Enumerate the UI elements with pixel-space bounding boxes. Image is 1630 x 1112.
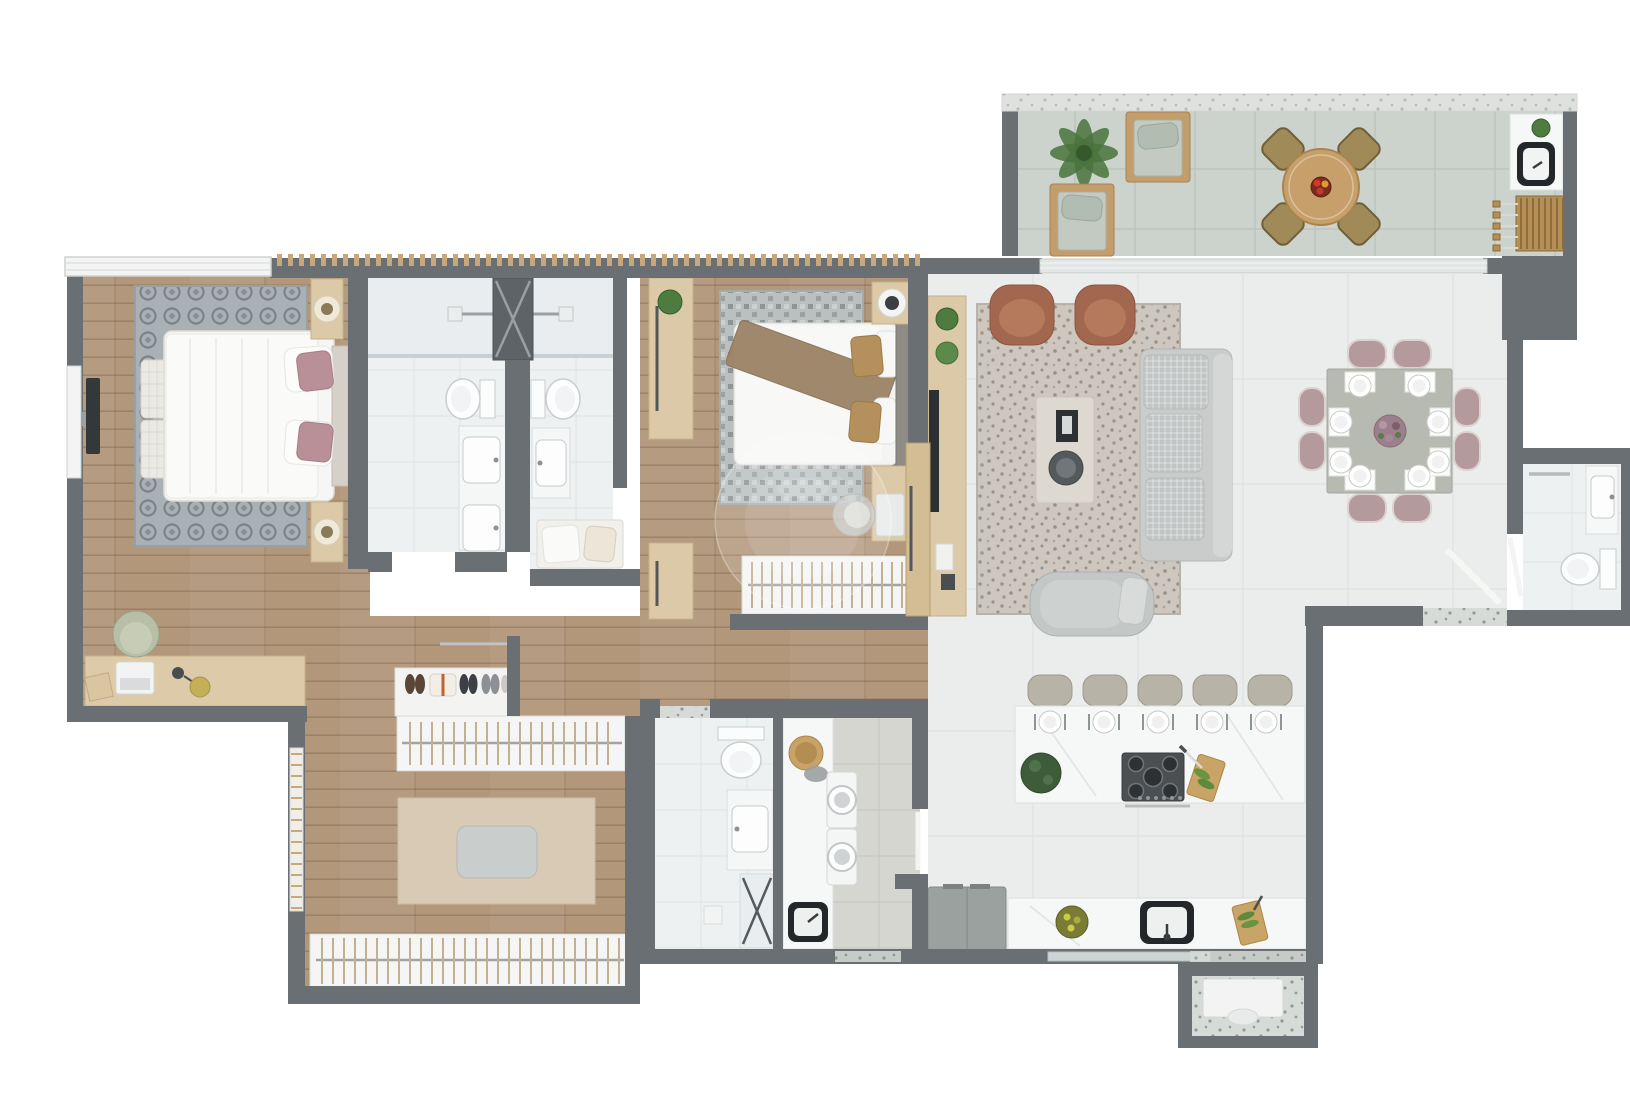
lamp-bed2-center	[885, 296, 899, 310]
island-plant	[1021, 753, 1061, 793]
pergola-slat	[838, 254, 843, 266]
cooktop-knob	[1154, 796, 1158, 800]
pergola-slat	[706, 254, 711, 266]
pergola-slat	[420, 254, 425, 266]
bbq-sink-basin	[1523, 148, 1549, 180]
wall-kitchen-right	[1306, 626, 1323, 964]
pergola-slat	[728, 254, 733, 266]
bath2-toilet-tank	[531, 380, 545, 418]
cooktop-knob	[1162, 796, 1166, 800]
kitchen-stool	[1248, 675, 1292, 706]
grill-skewer-handle	[1493, 212, 1500, 218]
dining-chair-bottom	[1348, 494, 1386, 522]
pergola-slat	[794, 254, 799, 266]
wall-powder-bottom	[1507, 610, 1630, 626]
powder-toilet-tank	[1600, 549, 1616, 589]
plate-top-inner	[1413, 380, 1426, 393]
window-bedroom1-left	[67, 366, 81, 478]
pergola-slat	[354, 254, 359, 266]
sofa-backrest	[1213, 354, 1232, 557]
island-plate-inner	[1044, 716, 1057, 729]
pergola-slat	[321, 254, 326, 266]
pergola-slat	[684, 254, 689, 266]
wall-terrace-top-speckle	[1002, 94, 1577, 111]
wall-bedroom2-bottom	[730, 614, 928, 630]
coffee-table-bowl-inner	[1056, 458, 1076, 478]
watermark-dome	[777, 478, 829, 498]
grill-skewer-handle	[1493, 223, 1500, 229]
service-door-threshold	[1190, 951, 1306, 962]
pergola-slat	[519, 254, 524, 266]
office-notebook	[85, 673, 113, 701]
cooktop-burner-bottom	[1129, 784, 1144, 799]
pergola-slat	[772, 254, 777, 266]
wall-bath1-bottom-a	[368, 552, 392, 572]
wall-bath1-bottom-b	[455, 552, 507, 572]
pergola-slat	[563, 254, 568, 266]
ac-unit-fan	[1228, 1009, 1258, 1025]
cooktop-burner-top	[1129, 757, 1144, 772]
sofa-cushion-mid	[1146, 414, 1202, 472]
island-plate-inner	[1152, 716, 1165, 729]
shoe-pair-2a	[460, 674, 469, 694]
dining-chair-top	[1348, 340, 1386, 368]
pergola-slat	[816, 254, 821, 266]
pergola-slat	[497, 254, 502, 266]
island-plant-leaf-a	[1029, 760, 1041, 772]
dining-chair-right	[1454, 388, 1480, 426]
tv-bedroom1	[86, 378, 100, 454]
laundry-basket-inner	[795, 742, 817, 764]
wall-closet-stub	[507, 636, 520, 716]
island-plate-inner	[1260, 716, 1273, 729]
fruit-c	[1317, 188, 1324, 195]
pergola-slat	[508, 254, 513, 266]
lamp-bed1-bottom-shade	[321, 526, 333, 538]
wall-closet-bottom	[288, 986, 640, 1004]
pergola-slat	[585, 254, 590, 266]
pergola-slat	[376, 254, 381, 266]
pergola-slat	[882, 254, 887, 266]
powder-toilet-seat	[1567, 559, 1589, 579]
wall-left	[67, 268, 83, 722]
bath2-shower-head	[559, 307, 573, 321]
pergola-slat	[904, 254, 909, 266]
fern-center	[1076, 145, 1092, 161]
pergola-slat	[299, 254, 304, 266]
kitchen-faucet-base	[1164, 934, 1171, 941]
pergola-slat	[541, 254, 546, 266]
shoe-pair-3b	[491, 674, 500, 694]
pergola-slat	[365, 254, 370, 266]
plate-bottom-inner	[1413, 470, 1426, 483]
bath3-toilet-tank	[718, 727, 764, 740]
pergola-slat	[332, 254, 337, 266]
shoe-pair-1a	[405, 674, 415, 694]
pergola-slat	[552, 254, 557, 266]
lamp-bed1-top-shade	[321, 303, 333, 315]
wall-closet-right	[625, 716, 640, 1004]
pergola-slat	[453, 254, 458, 266]
window-bedroom1-left-handle	[81, 412, 86, 426]
terrace-glass-door	[1040, 259, 1487, 273]
wall-bath-divider	[505, 360, 530, 552]
sofa-cushion-low	[1146, 478, 1204, 540]
bath1-toilet-tank	[480, 380, 495, 418]
counter-veg-b	[1074, 917, 1081, 924]
floor-plan-svg	[40, 16, 1630, 1096]
wall-powder-right	[1621, 448, 1630, 626]
pergola-slat	[574, 254, 579, 266]
wall-terrace-left	[1002, 109, 1018, 256]
dining-chair-left	[1299, 432, 1325, 470]
powder-faucet	[1610, 495, 1615, 500]
plate-top-inner	[1354, 380, 1367, 393]
pergola-slat	[288, 254, 293, 266]
pergola-slat	[343, 254, 348, 266]
bath2-bench-pillow-b	[583, 526, 616, 563]
pergola-slat	[629, 254, 634, 266]
pergola-slat	[805, 254, 810, 266]
island-plate-inner	[1098, 716, 1111, 729]
kitchen-stool	[1028, 675, 1072, 706]
dining-flower-c	[1385, 434, 1393, 442]
shoe-pair-2b	[469, 674, 478, 694]
wall-service-top-a	[640, 699, 660, 718]
entry-threshold	[1423, 608, 1507, 626]
bath2-shower-glass	[530, 354, 613, 358]
coffee-table-magazine-figure	[1062, 416, 1072, 434]
dining-flower-b	[1392, 422, 1400, 430]
pergola-slat	[893, 254, 898, 266]
plant-bedroom2-wardrobe	[658, 290, 682, 314]
cooktop-burner-center	[1144, 768, 1163, 787]
terrace-lounge-a-pillow	[1137, 122, 1179, 150]
pergola-slat	[464, 254, 469, 266]
office-lamp	[172, 667, 184, 679]
window-bedroom1-top	[65, 257, 271, 276]
pergola-slat	[849, 254, 854, 266]
shoe-pair-1b	[415, 674, 425, 694]
pergola-slat	[398, 254, 403, 266]
plate-right-inner	[1432, 416, 1445, 429]
bath3-threshold	[658, 706, 710, 718]
pergola-slat	[277, 254, 282, 266]
pergola-slat	[717, 254, 722, 266]
wall-entry-bottom	[1305, 606, 1423, 626]
pergola-slat	[662, 254, 667, 266]
pergola-slat	[486, 254, 491, 266]
office-laptop-keys	[120, 678, 150, 690]
pergola-slat	[783, 254, 788, 266]
washer-door-glass	[834, 792, 850, 808]
bed2-pillow-tan-a	[850, 335, 883, 377]
plant-console-a	[936, 308, 958, 330]
bath2-faucet	[538, 461, 543, 466]
bath1-faucet-b	[494, 526, 499, 531]
wall-bath2-bottom	[530, 569, 640, 586]
wall-bedroom1-bath	[348, 268, 368, 569]
pergola-slat	[310, 254, 315, 266]
armchair-right-cushion	[1084, 299, 1126, 337]
grill-skewer-handle	[1493, 234, 1500, 240]
fridge-handle-a	[943, 884, 963, 889]
wall-powder-left-stub	[1507, 448, 1523, 534]
office-hat	[190, 677, 210, 697]
counter-veg-bowl	[1056, 906, 1088, 938]
island-plant-leaf-b	[1043, 775, 1053, 785]
pergola-slat	[431, 254, 436, 266]
wall-bath2-right	[613, 278, 627, 488]
kitchen-stool	[1083, 675, 1127, 706]
laundry-cloth	[804, 766, 828, 782]
bath1-faucet-a	[494, 458, 499, 463]
pergola-slat	[739, 254, 744, 266]
pergola-slat	[860, 254, 865, 266]
grill-skewer-handle	[1493, 201, 1500, 207]
armchair-left-cushion	[999, 299, 1045, 337]
bath3-toilet-seat	[729, 751, 753, 773]
pergola-slat	[761, 254, 766, 266]
bath1-toilet-seat	[451, 386, 471, 412]
counter-veg-a	[1064, 914, 1071, 921]
cooktop-knob	[1178, 796, 1182, 800]
wall-bath3-laundry	[773, 718, 783, 949]
pergola-slat	[607, 254, 612, 266]
terrace-lounge-b-pillow	[1061, 194, 1103, 221]
laundry-threshold	[835, 951, 901, 962]
plate-left-inner	[1335, 456, 1348, 469]
pergola-slat	[915, 254, 920, 266]
bed2-pillow-tan-b	[848, 401, 881, 443]
lounge-chaise-seat	[1040, 580, 1126, 628]
bath3-faucet	[735, 827, 740, 832]
bath2-toilet-seat	[555, 386, 575, 412]
kitchen-stool	[1138, 675, 1182, 706]
counter-veg-c	[1068, 925, 1075, 932]
bed1-pillow-pink-a	[296, 350, 334, 392]
pergola-slat	[409, 254, 414, 266]
kitchen-window	[1048, 952, 1210, 961]
shoe-pair-3a	[482, 674, 491, 694]
kitchen-stool	[1193, 675, 1237, 706]
pergola-slat	[651, 254, 656, 266]
plate-left-inner	[1335, 416, 1348, 429]
wall-office-bottom	[67, 706, 307, 722]
pergola-slat	[827, 254, 832, 266]
cooktop-burner-top	[1163, 757, 1178, 772]
pergola-slat	[596, 254, 601, 266]
bath3-mat	[704, 906, 722, 924]
office-chair-seat	[120, 622, 152, 654]
pergola-slat	[695, 254, 700, 266]
wall-kitchen-stub	[895, 874, 928, 889]
plate-bottom-inner	[1354, 470, 1367, 483]
wall-bath3-left	[640, 718, 655, 949]
pergola-slat	[673, 254, 678, 266]
wall-bedroom2-right	[908, 258, 928, 443]
wall-terrace-right	[1563, 94, 1577, 340]
wall-powder-top	[1507, 448, 1630, 464]
pergola-slat	[750, 254, 755, 266]
cooktop-knob	[1170, 796, 1174, 800]
pergola-slat	[442, 254, 447, 266]
dining-leaf-a	[1378, 433, 1384, 439]
floor-plan	[40, 16, 1630, 1096]
plate-right-inner	[1432, 456, 1445, 469]
fruit-b	[1322, 181, 1329, 188]
plant-console-b	[936, 342, 958, 364]
closet-ottoman	[457, 826, 537, 878]
bath1-shower-head	[448, 307, 462, 321]
bed1-pillow-pink-b	[296, 421, 334, 462]
layer-service-balcony	[1192, 976, 1304, 1036]
dining-flower-a	[1379, 421, 1387, 429]
pergola-slat	[618, 254, 623, 266]
dining-leaf-b	[1395, 432, 1401, 438]
dining-chair-left	[1299, 388, 1325, 426]
sofa-chaise-cushion	[1144, 355, 1208, 409]
pergola-slat	[475, 254, 480, 266]
pergola-slat	[640, 254, 645, 266]
cooktop-knob	[1138, 796, 1142, 800]
cooktop-knob	[1146, 796, 1150, 800]
dining-chair-top	[1393, 340, 1431, 368]
dining-centerpiece	[1374, 415, 1406, 447]
console-speaker	[936, 544, 953, 570]
pergola-slat	[871, 254, 876, 266]
layer-watermark	[715, 433, 891, 609]
bath1-shower-zone	[368, 278, 493, 356]
fruit-a	[1314, 180, 1321, 187]
bath2-bench-pillow-a	[541, 524, 580, 563]
pergola-slat	[387, 254, 392, 266]
dining-chair-bottom	[1393, 494, 1431, 522]
bbq-plant	[1532, 119, 1550, 137]
fridge-handle-b	[970, 884, 990, 889]
wall-living-top-left	[928, 258, 1042, 274]
grill-skewer-handle	[1493, 245, 1500, 251]
dryer-door-glass	[834, 849, 850, 865]
bed1-headboard	[332, 346, 348, 486]
pergola-slat	[530, 254, 535, 266]
island-plate-inner	[1206, 716, 1219, 729]
dining-chair-right	[1454, 432, 1480, 470]
wall-service-top-b	[710, 699, 928, 718]
bath1-shower-glass	[368, 354, 493, 358]
wall-laundry-right-a	[912, 699, 928, 809]
console-box	[941, 574, 955, 590]
